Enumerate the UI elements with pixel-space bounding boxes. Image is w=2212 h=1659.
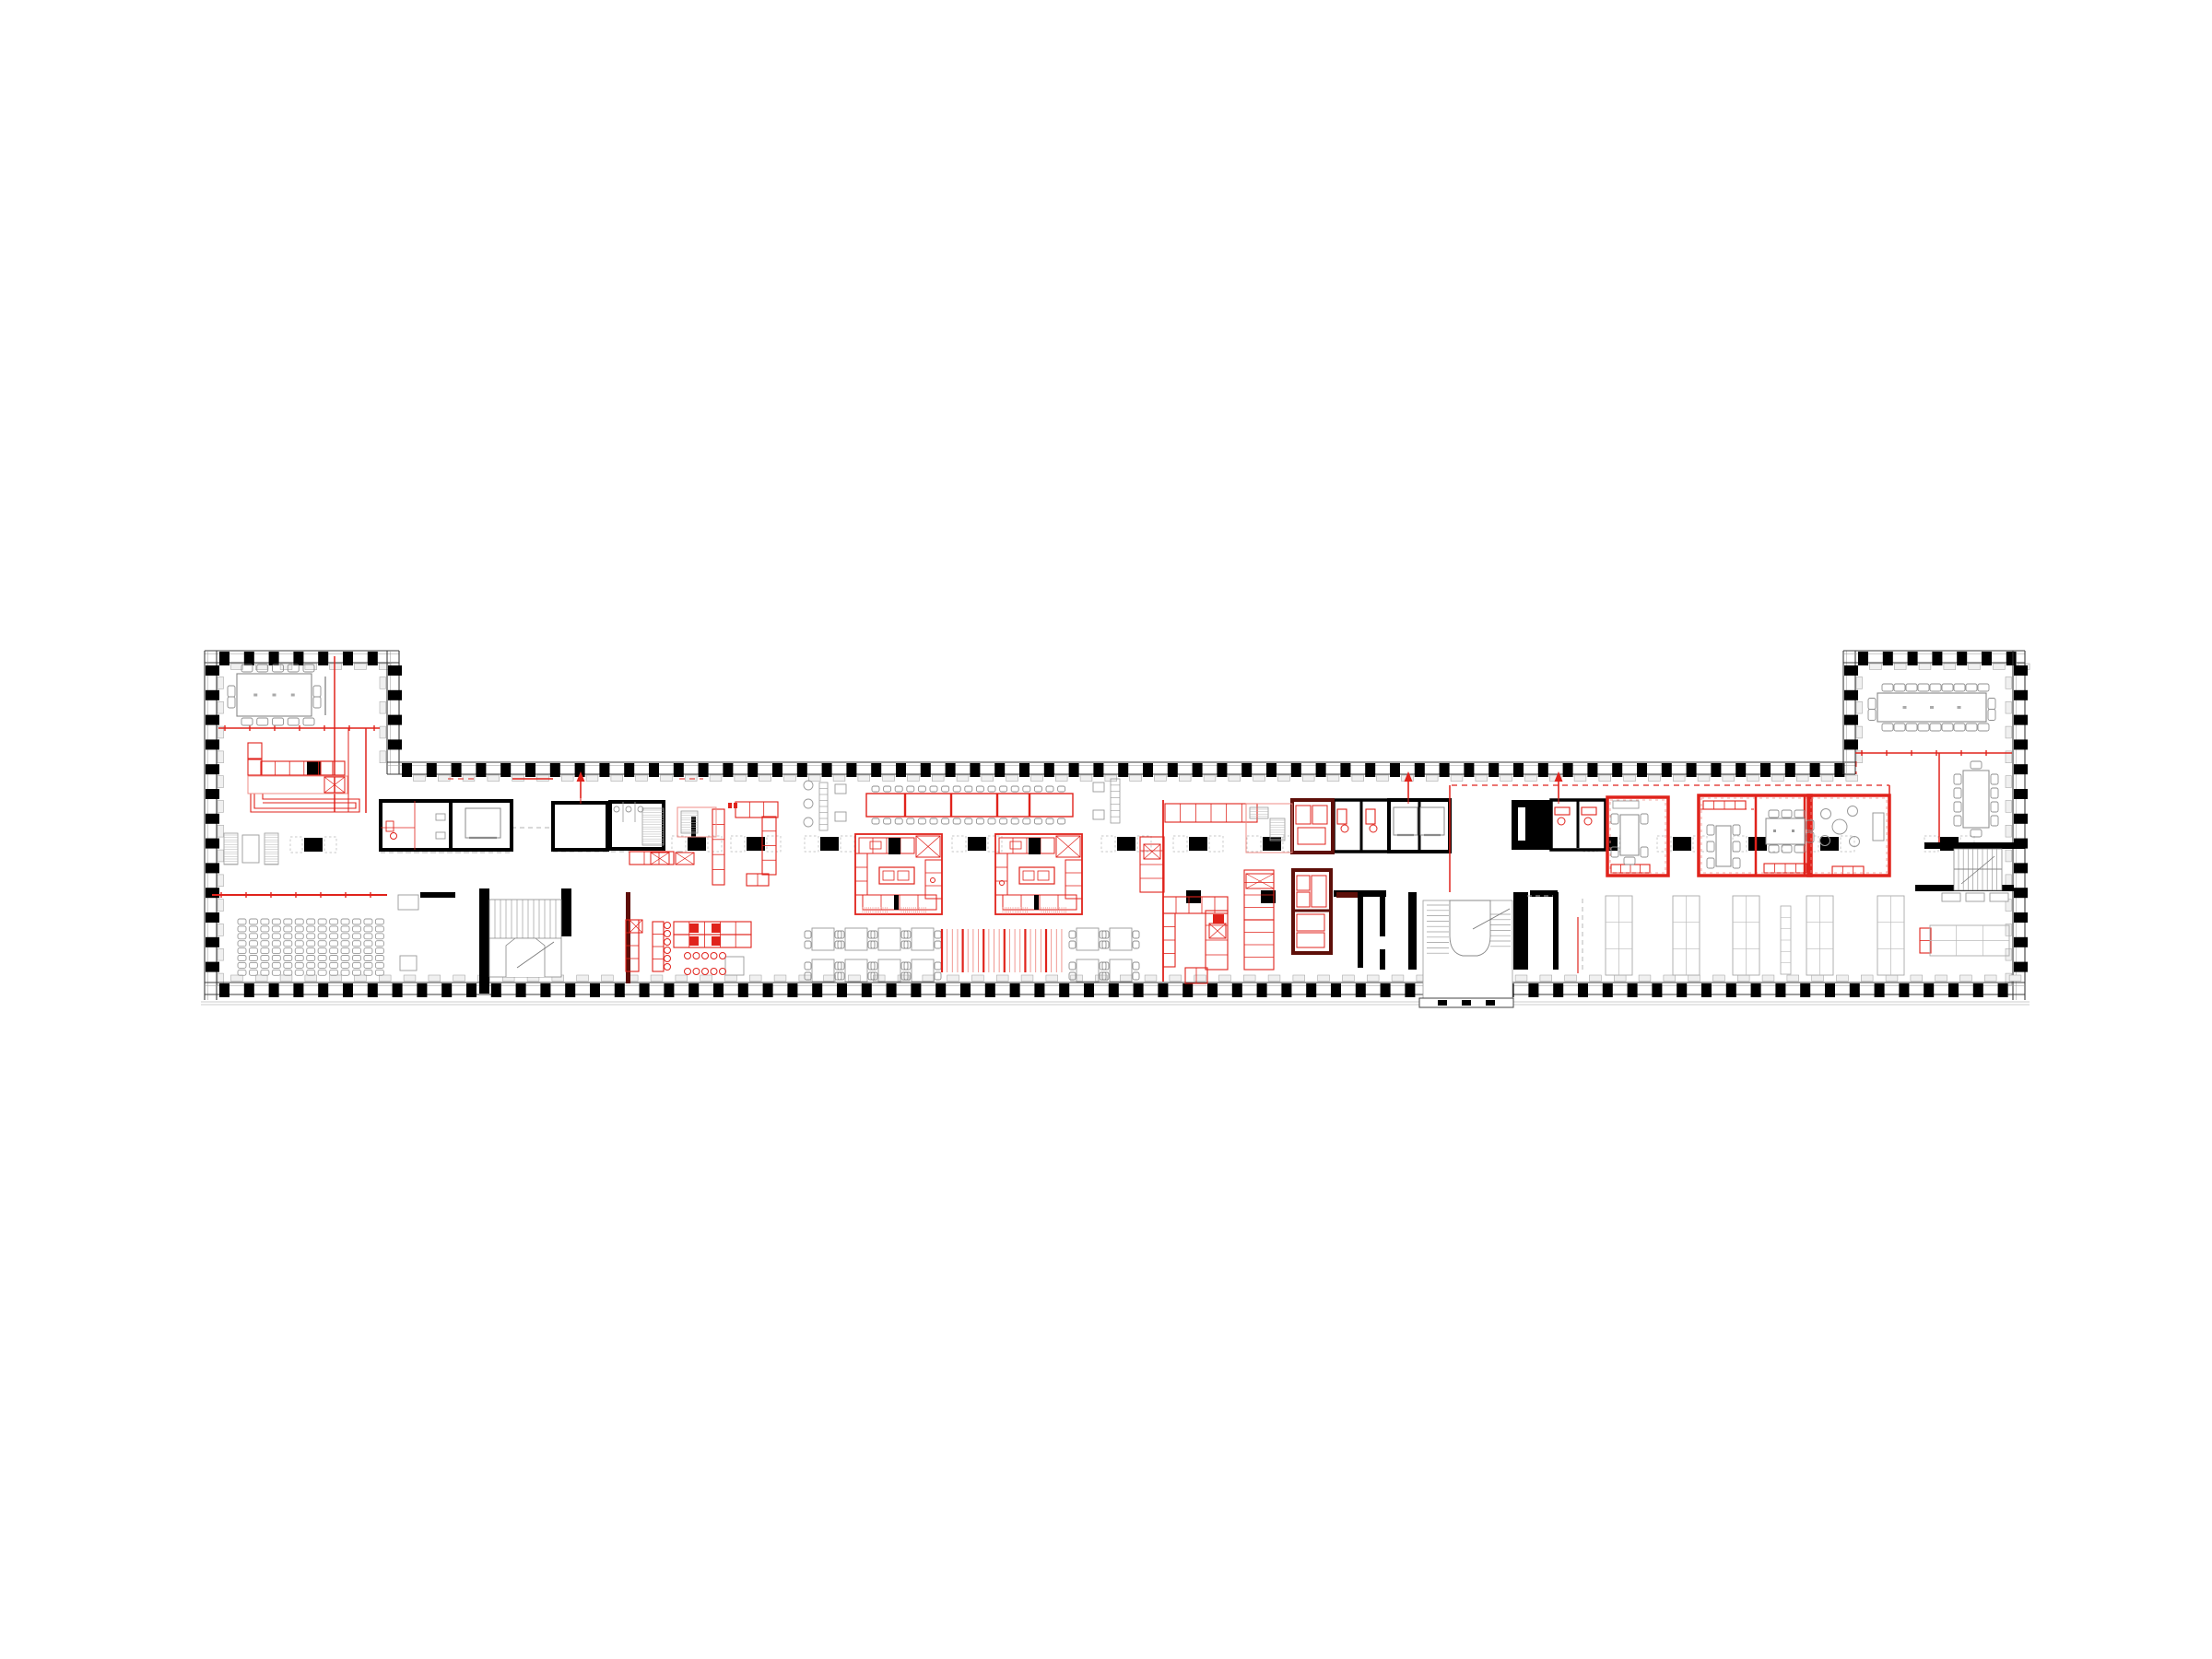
band-top-wall bbox=[387, 762, 1858, 782]
wing-b-top bbox=[1843, 651, 2030, 670]
wing-a-top bbox=[205, 651, 399, 670]
core-toilets-a bbox=[381, 801, 452, 850]
open-office-benches bbox=[1606, 896, 2009, 975]
wing-b-west-wall bbox=[1843, 651, 1863, 774]
core-toilets-b bbox=[610, 802, 664, 849]
cold-rooms bbox=[1292, 800, 1333, 953]
floor-plan-canvas: Long office building floor plan with caf… bbox=[0, 0, 2212, 1659]
conference-room-east bbox=[1868, 684, 1995, 731]
food-island-1 bbox=[855, 834, 942, 914]
meeting-room-b bbox=[1707, 825, 1740, 868]
cafeteria-tables bbox=[805, 928, 1139, 982]
core-shaft bbox=[553, 803, 607, 850]
meeting-room-c bbox=[1766, 810, 1814, 853]
core-elevator-c bbox=[1512, 800, 1551, 850]
stair-west bbox=[489, 900, 561, 977]
floor-plan-page: Long office building floor plan with caf… bbox=[0, 0, 2212, 1659]
grand-stair-entrance bbox=[1419, 900, 1513, 1007]
food-island-2 bbox=[995, 834, 1082, 914]
south-wall bbox=[205, 975, 2025, 997]
stair-east bbox=[1954, 849, 2002, 890]
west-wall bbox=[205, 651, 224, 1000]
auditorium-seating bbox=[238, 919, 383, 975]
cafeteria-long-tables bbox=[866, 786, 1073, 824]
meeting-room-a bbox=[1611, 801, 1648, 865]
meeting-suites bbox=[1607, 795, 1889, 876]
conference-room-west bbox=[228, 665, 325, 725]
meeting-table-east bbox=[1954, 761, 1998, 837]
queue-lanes bbox=[942, 929, 1062, 972]
